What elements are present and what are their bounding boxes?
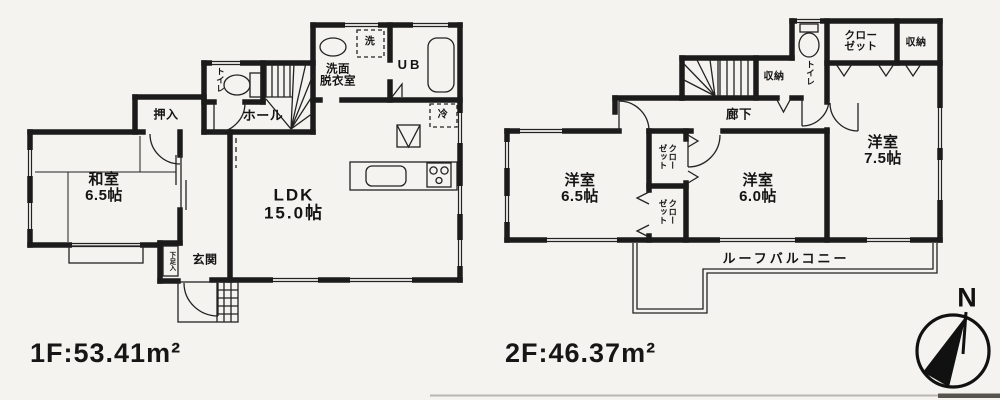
window	[937, 160, 944, 200]
washer-box	[357, 30, 384, 57]
sink-icon	[320, 38, 346, 56]
floorplan-canvas: 押入 ホール トイレ 和室 6.5帖 LDK 15.0帖 玄関 下足入 洗面 脱…	[0, 0, 1000, 400]
bedroom60-door-arc	[688, 135, 720, 167]
bedroom65-door-arc	[619, 101, 649, 131]
bedroom75-door-arc	[830, 103, 858, 131]
floorplan-page: { "floor1": { "area_label": "1F:53.41m²"…	[0, 0, 1000, 400]
window	[547, 237, 617, 244]
window	[520, 128, 562, 135]
window	[937, 108, 944, 148]
bathtub-icon	[392, 38, 454, 97]
scan-artifact-line	[430, 394, 1000, 399]
window	[457, 113, 464, 143]
stairs-1f-icon	[263, 63, 313, 129]
veranda-deck	[69, 246, 143, 263]
shoe-cabinet-box	[163, 246, 178, 276]
window	[413, 22, 448, 29]
window	[27, 150, 34, 176]
window	[27, 203, 34, 229]
window	[720, 237, 795, 244]
tatami-lines	[35, 136, 176, 242]
toilet-icon	[799, 24, 819, 57]
window	[867, 237, 910, 244]
window	[457, 240, 464, 266]
north-compass-icon	[917, 312, 989, 387]
kitchen-counter-icon	[350, 162, 457, 190]
sliding-door-panels	[176, 155, 186, 210]
window	[273, 277, 318, 284]
window	[212, 60, 240, 67]
toilet-door-arc	[214, 103, 245, 133]
floor-2f-walls	[507, 21, 940, 240]
fridge-box	[430, 104, 457, 127]
window	[345, 22, 378, 29]
roof-balcony-outline	[633, 243, 937, 313]
kitchen-sink-symbol	[397, 125, 420, 147]
window	[72, 242, 140, 249]
stairs-2f-icon	[684, 60, 748, 96]
floorplan-drawing	[0, 0, 1000, 400]
window	[504, 142, 511, 168]
window	[350, 277, 412, 284]
window	[504, 196, 511, 222]
toilet-icon	[224, 73, 261, 97]
entrance-porch	[178, 282, 238, 322]
floor-2f-fixtures	[619, 24, 937, 313]
